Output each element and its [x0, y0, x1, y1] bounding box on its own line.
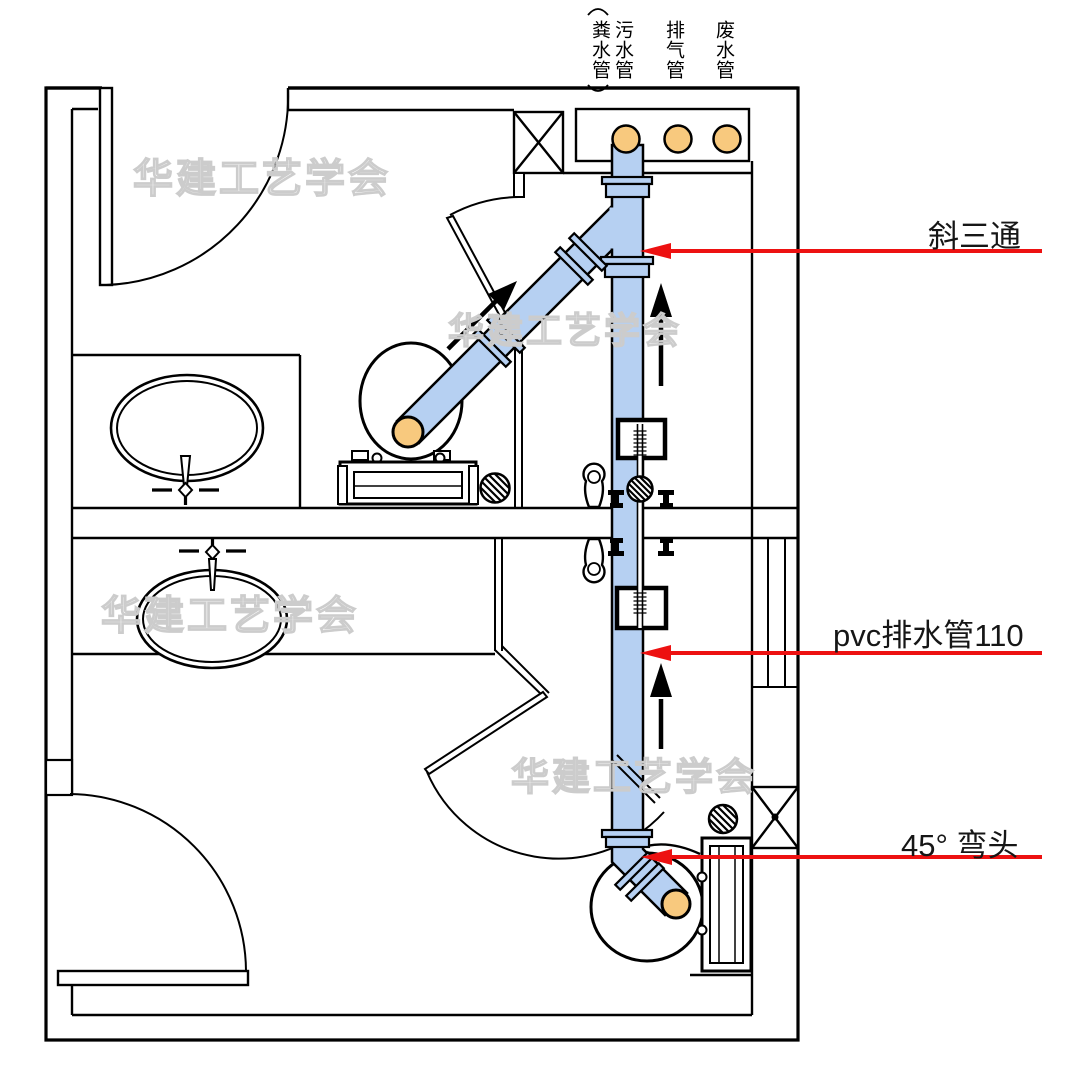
toilet-outlet-upper — [393, 417, 423, 447]
annotation-oblique-tee: 斜三通 — [928, 211, 1021, 256]
slab-band — [72, 508, 798, 538]
door-leaf — [58, 971, 248, 985]
faucet-spout — [209, 559, 216, 590]
faucet-handle-center — [206, 545, 219, 559]
floor-plan-svg — [0, 0, 1080, 1065]
riser-label-vent: 排气管 — [662, 20, 684, 80]
riser-waste-pipe — [714, 126, 741, 153]
annotation-pvc-drain-pipe: pvc排水管110 — [833, 610, 1024, 655]
column-box-bottom — [752, 787, 798, 848]
hanger-symbols — [584, 464, 605, 583]
door-swing-arc — [450, 197, 519, 215]
partition-lower — [495, 538, 502, 651]
partition-upper — [515, 345, 522, 508]
sink-upper — [111, 375, 263, 505]
sink-lower — [137, 538, 287, 668]
column-box-top — [514, 112, 563, 173]
door-top-left — [100, 88, 288, 285]
riser-soil-pipe — [613, 126, 640, 153]
door-bottom-left — [58, 794, 248, 985]
annotation-45-elbow: 45° 弯头 — [901, 820, 1019, 865]
faucet-handle-center — [179, 483, 192, 497]
drain-pipes — [397, 145, 687, 915]
riser-label-sewage: 污水管 — [611, 20, 633, 80]
riser-label-soil-alt: 粪水管 — [588, 20, 610, 80]
plumbing-plan-drawing: 华建工艺学会 华建工艺学会 华建工艺学会 华建工艺学会 粪水管 污水管 排气管 … — [0, 0, 1080, 1065]
pipe-risers — [393, 126, 741, 919]
door-swing-arc — [106, 89, 288, 285]
door-jamb-upper — [514, 173, 524, 197]
toilet-outlet-lower — [662, 890, 690, 918]
partition-diagonal — [495, 646, 549, 696]
riser-vent-pipe — [665, 126, 692, 153]
door-swing-arc — [70, 794, 246, 971]
door-leaf — [100, 88, 112, 285]
riser-label-waste: 废水管 — [712, 20, 734, 80]
callout-arrows — [640, 243, 1042, 865]
door-leaf — [425, 692, 547, 774]
door-jamb-lower-left — [46, 760, 72, 795]
